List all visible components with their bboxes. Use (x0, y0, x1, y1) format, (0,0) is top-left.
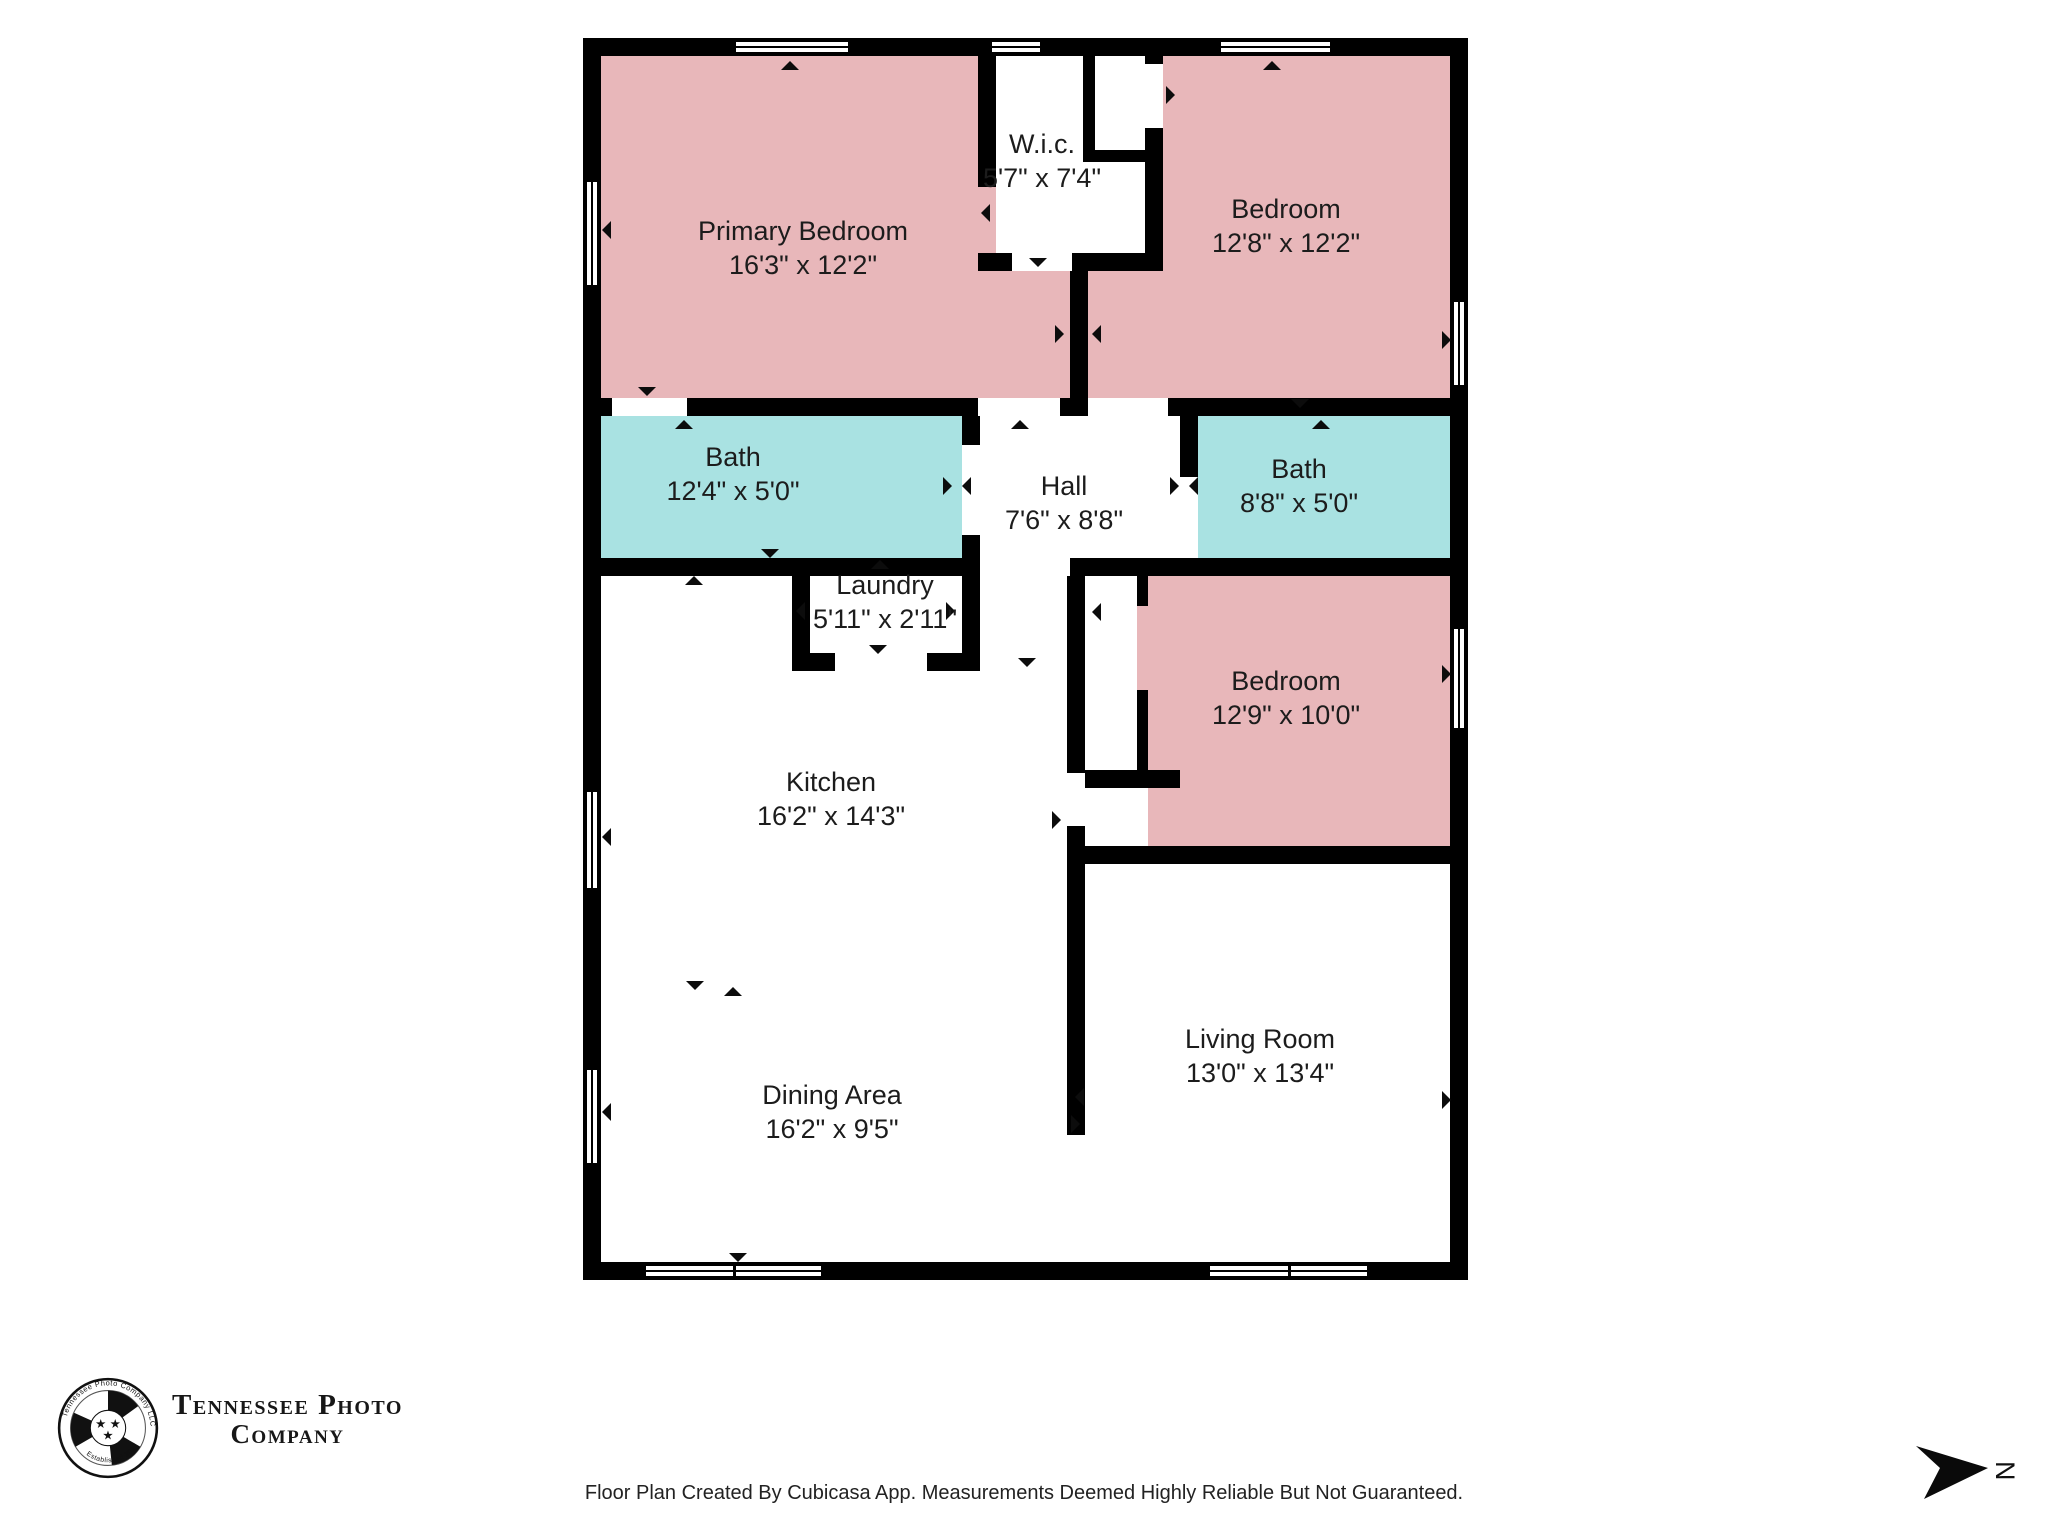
window (734, 40, 850, 54)
room-name: Bedroom (1212, 664, 1360, 698)
wall (962, 416, 980, 445)
wall (687, 398, 978, 416)
window-pane-line (591, 182, 593, 285)
window-pane-line (591, 792, 593, 888)
window (585, 790, 599, 890)
opening-marker-icon (1018, 658, 1036, 667)
room-label-dining-area: Dining Area16'2" x 9'5" (762, 1078, 902, 1146)
room-name: W.i.c. (983, 127, 1101, 161)
window-pane-line (1458, 629, 1460, 728)
logo-star: ★ (102, 1428, 113, 1442)
room-name: Dining Area (762, 1078, 902, 1112)
opening-marker-icon (729, 1253, 747, 1262)
room-label-laundry: Laundry5'11" x 2'11" (813, 568, 957, 636)
opening-marker-icon (981, 204, 990, 222)
wall (1070, 271, 1088, 398)
room-dimensions: 8'8" x 5'0" (1240, 486, 1358, 520)
wall (1085, 770, 1180, 788)
company-logo: ★ ★ ★ Tennessee Photo Company LLC Establ… (56, 1376, 403, 1480)
window-pane-line (1458, 302, 1460, 385)
opening-marker-icon (602, 221, 611, 239)
room-dimensions: 5'7" x 7'4" (983, 161, 1101, 195)
opening-marker-icon (1189, 477, 1198, 495)
room-dimensions: 5'11" x 2'11" (813, 602, 957, 636)
window (1452, 300, 1466, 387)
floor-plan-page: Primary Bedroom16'3" x 12'2"W.i.c.5'7" x… (0, 0, 2048, 1536)
closet-area (1085, 788, 1148, 846)
window (1208, 1264, 1369, 1278)
opening-marker-icon (1170, 477, 1179, 495)
wall (962, 535, 980, 558)
opening-marker-icon (796, 602, 805, 620)
room-label-kitchen: Kitchen16'2" x 14'3" (757, 765, 905, 833)
room-label-bedroom-3: Bedroom12'9" x 10'0" (1212, 664, 1360, 732)
room-name: Hall (1005, 469, 1123, 503)
wall (1067, 576, 1085, 773)
opening-marker-icon (1312, 420, 1330, 429)
room-name: Bedroom (1212, 192, 1360, 226)
room-name: Laundry (813, 568, 957, 602)
window (1452, 627, 1466, 730)
window-pane-line (1221, 46, 1330, 48)
wall (1060, 398, 1088, 416)
window-mullion (733, 1266, 736, 1276)
north-label: N (1990, 1461, 2020, 1481)
north-arrow-icon (1916, 1446, 1988, 1499)
wall (601, 398, 612, 416)
wall (978, 253, 1012, 271)
wall (1145, 128, 1163, 271)
room-dimensions: 16'3" x 12'2" (698, 248, 908, 282)
room-label-wic: W.i.c.5'7" x 7'4" (983, 127, 1101, 195)
disclaimer-text: Floor Plan Created By Cubicasa App. Meas… (585, 1482, 1463, 1505)
north-indicator: N (1905, 1435, 2035, 1512)
wall (792, 653, 835, 671)
room-dimensions: 12'8" x 12'2" (1212, 226, 1360, 260)
room-name: Primary Bedroom (698, 214, 908, 248)
window (585, 180, 599, 287)
window-pane-line (992, 46, 1040, 48)
room-dining-area (601, 876, 1067, 1262)
opening-marker-icon (962, 477, 971, 495)
room-name: Bath (1240, 452, 1358, 486)
room-name: Kitchen (757, 765, 905, 799)
wall (1145, 56, 1163, 64)
window-pane-line (591, 1070, 593, 1163)
room-label-bath-1: Bath12'4" x 5'0" (666, 440, 799, 508)
wall (1070, 558, 1450, 576)
window (1219, 40, 1332, 54)
wall (1180, 416, 1198, 477)
room-dimensions: 12'9" x 10'0" (1212, 698, 1360, 732)
opening-marker-icon (1442, 331, 1451, 349)
opening-marker-icon (638, 387, 656, 396)
logo-company-name-line1: Tennessee Photo (172, 1390, 403, 1420)
room-name: Bath (666, 440, 799, 474)
window-pane-line (736, 46, 848, 48)
opening-marker-icon (1075, 1088, 1084, 1106)
room-dimensions: 16'2" x 9'5" (762, 1112, 902, 1146)
opening-marker-icon (869, 645, 887, 654)
opening-marker-icon (761, 549, 779, 558)
room-label-hall: Hall7'6" x 8'8" (1005, 469, 1123, 537)
room-dimensions: 16'2" x 14'3" (757, 799, 905, 833)
window (644, 1264, 823, 1278)
opening-marker-icon (1442, 1091, 1451, 1109)
opening-marker-icon (686, 981, 704, 990)
logo-company-name-line2: Company (172, 1420, 403, 1448)
room-name: Living Room (1185, 1022, 1335, 1056)
opening-marker-icon (1291, 399, 1309, 408)
opening-marker-icon (781, 61, 799, 70)
logo-emblem-icon: ★ ★ ★ Tennessee Photo Company LLC Establ… (56, 1376, 160, 1480)
window-mullion (1288, 1266, 1291, 1276)
opening-marker-icon (943, 477, 952, 495)
opening-marker-icon (675, 420, 693, 429)
room-label-living-room: Living Room13'0" x 13'4" (1185, 1022, 1335, 1090)
opening-marker-icon (1442, 665, 1451, 683)
opening-marker-icon (724, 987, 742, 996)
opening-marker-icon (1029, 258, 1047, 267)
window (990, 40, 1042, 54)
room-label-bedroom-2: Bedroom12'8" x 12'2" (1212, 192, 1360, 260)
opening-marker-icon (1092, 325, 1101, 343)
opening-marker-icon (602, 828, 611, 846)
room-label-primary-bedroom: Primary Bedroom16'3" x 12'2" (698, 214, 908, 282)
wall (927, 653, 980, 671)
opening-marker-icon (685, 576, 703, 585)
opening-marker-icon (1055, 325, 1064, 343)
opening-marker-icon (1052, 811, 1061, 829)
wall (1137, 576, 1148, 606)
opening-marker-icon (1166, 86, 1175, 104)
room-label-bath-2: Bath8'8" x 5'0" (1240, 452, 1358, 520)
room-dimensions: 12'4" x 5'0" (666, 474, 799, 508)
window (585, 1068, 599, 1165)
wall (1168, 398, 1450, 416)
opening-marker-icon (602, 1103, 611, 1121)
opening-marker-icon (1092, 603, 1101, 621)
room-dimensions: 13'0" x 13'4" (1185, 1056, 1335, 1090)
wall (1137, 690, 1148, 770)
opening-marker-icon (1011, 420, 1029, 429)
room-dimensions: 7'6" x 8'8" (1005, 503, 1123, 537)
opening-marker-icon (1263, 61, 1281, 70)
logo-wordmark: Tennessee Photo Company (172, 1390, 403, 1448)
opening-marker-icon (1071, 1115, 1080, 1133)
wall (1067, 846, 1450, 864)
